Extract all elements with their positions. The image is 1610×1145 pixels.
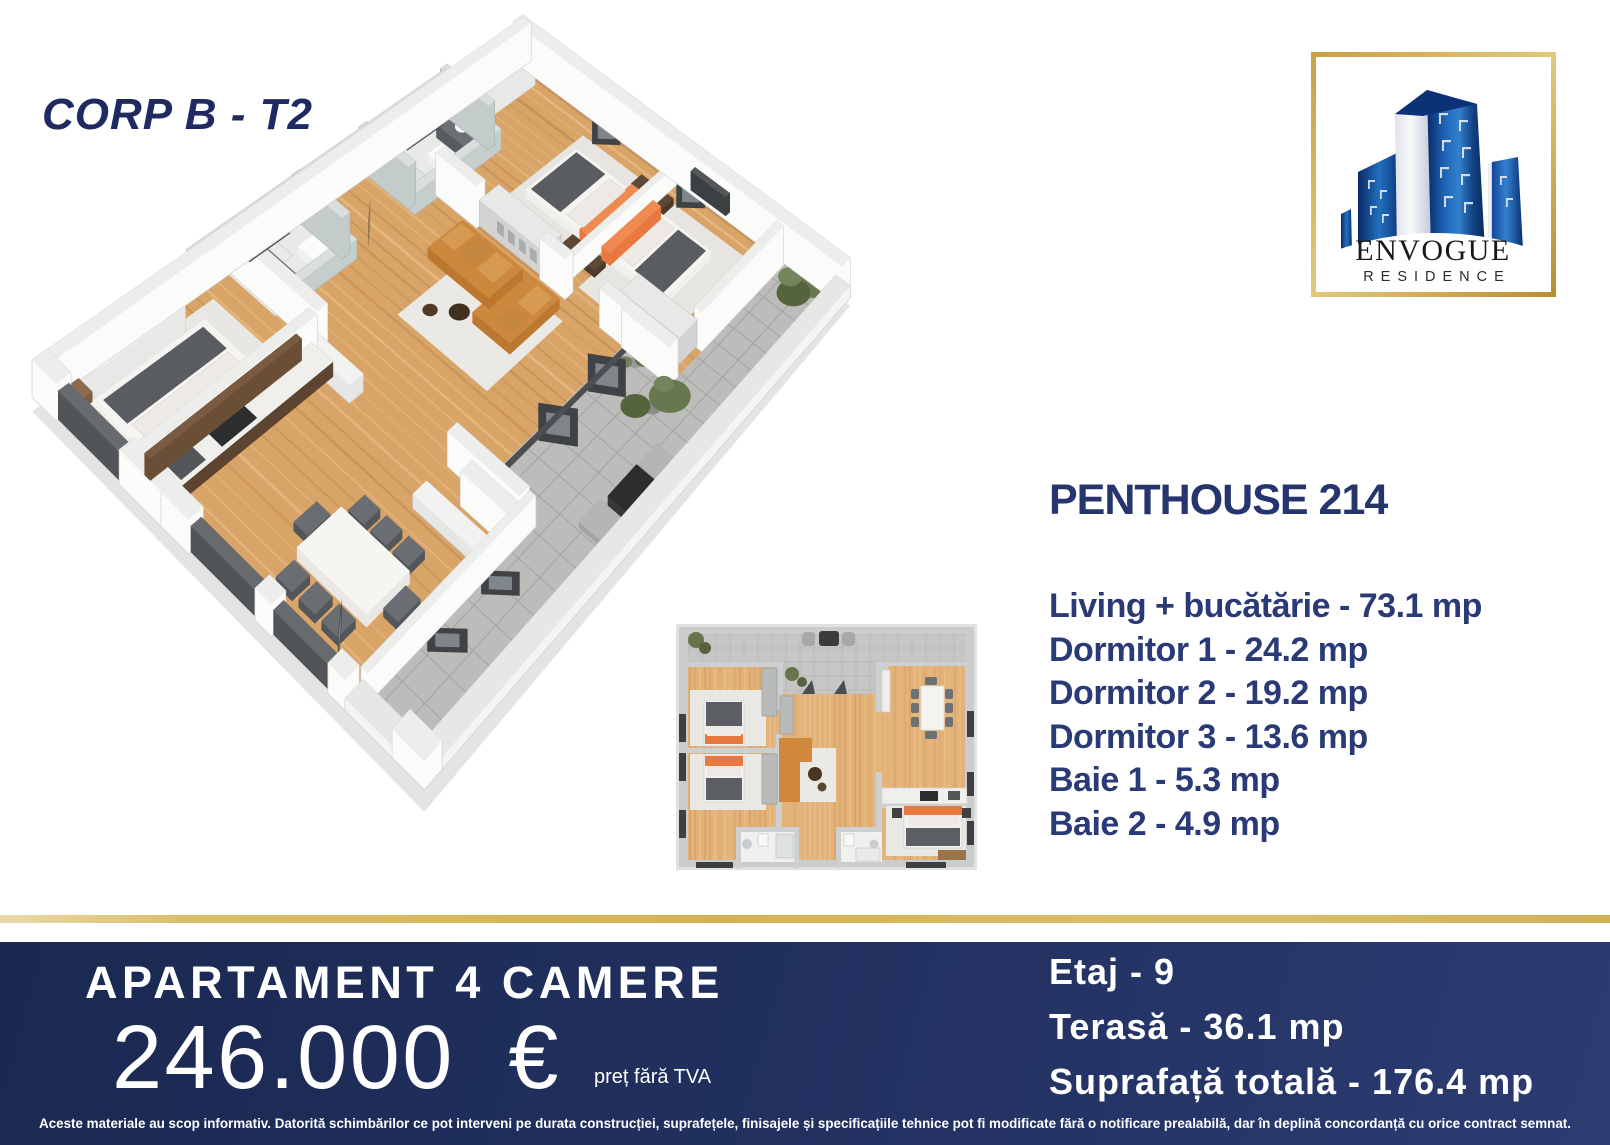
svg-text:ENVOGUE: ENVOGUE <box>1355 234 1510 267</box>
svg-text:RESIDENCE: RESIDENCE <box>1363 269 1511 285</box>
